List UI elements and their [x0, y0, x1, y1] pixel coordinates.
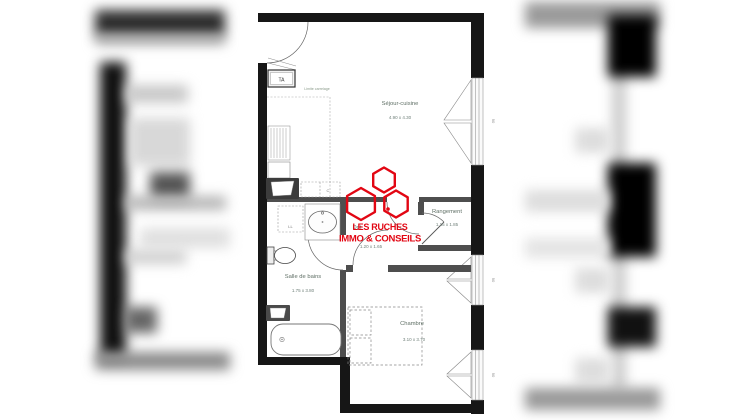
blur-right-wall-2	[608, 163, 656, 257]
wall-right-1	[471, 13, 484, 78]
blur-right-shutter-1	[575, 128, 610, 153]
blur-right-bottom-band	[525, 388, 660, 410]
blur-right-wall-3	[608, 307, 656, 347]
floor-plan: 90 90 90	[258, 8, 502, 414]
window-width-labels: 90 90 90	[491, 119, 496, 378]
window-sejour	[472, 78, 483, 165]
blur-right-shutter-3	[575, 358, 610, 383]
blur-left-detail-6	[126, 250, 186, 264]
pillow	[350, 338, 371, 363]
shower-fixture	[266, 305, 290, 321]
wall-right-2	[471, 165, 484, 255]
kitchen: TA Limite carrelage C	[266, 58, 340, 199]
electrical-panel-label: TA	[278, 78, 285, 84]
window-chambre	[472, 350, 483, 400]
kitchen-unit	[268, 162, 290, 178]
bed-outline	[348, 307, 422, 365]
bed	[348, 307, 422, 365]
entrance-door-arc	[267, 22, 308, 63]
kitchen-counter	[301, 182, 340, 197]
toilet	[267, 247, 296, 264]
blur-left-top-wall	[95, 10, 225, 36]
room-dims-chambre: 3.10 x 3.70	[403, 337, 426, 342]
blur-left-detail-5	[140, 228, 230, 248]
blur-left-bottom-band	[95, 352, 230, 370]
room-dims-bains: 1.75 x 3.80	[292, 288, 315, 293]
blur-left-detail-4	[126, 196, 226, 210]
window-width-label: 90	[491, 373, 496, 378]
blur-left-top-band	[95, 36, 225, 44]
agency-logo: LES RUCHES IMMO & CONSEILS	[339, 168, 421, 245]
blur-right-shutter-2	[575, 268, 610, 293]
room-name-rangement: Rangement	[432, 209, 462, 215]
blur-left-detail-7	[125, 307, 157, 333]
room-dims-rangement: 1.15 x 1.85	[436, 222, 459, 227]
window-rangement	[472, 255, 483, 305]
wall-top	[258, 13, 478, 22]
cooktop-label: C	[327, 188, 330, 193]
room-name-bains: Salle de bains	[285, 274, 322, 280]
tile-limit-label: Limite carrelage	[304, 87, 330, 91]
wall-bath-bottom	[258, 357, 350, 365]
window-width-label: 90	[491, 119, 496, 124]
wall-right-4	[471, 400, 484, 414]
kitchen-sink	[266, 178, 299, 199]
logo-line2: IMMO & CONSEILS	[339, 234, 421, 245]
wall-bottom	[340, 404, 484, 413]
blur-left-detail-1	[126, 85, 188, 103]
logo-hexagons-icon	[347, 168, 408, 221]
blur-right-detail-1	[525, 190, 610, 212]
fridge	[268, 126, 290, 160]
room-name-sejour: Séjour-cuisine	[382, 101, 419, 107]
blur-right-detail-2	[525, 238, 610, 258]
wall-right-3	[471, 305, 484, 350]
blur-left-detail-2	[130, 118, 190, 166]
pillow	[350, 310, 371, 335]
washing-machine-label: LL	[288, 224, 293, 229]
blur-left-wall	[100, 62, 126, 358]
room-name-chambre: Chambre	[400, 321, 424, 327]
wall-left	[258, 63, 267, 365]
floor-plan-canvas: 90 90 90	[0, 0, 750, 420]
room-dims-sejour: 4.90 x 4.30	[389, 115, 412, 120]
window-width-label: 90	[491, 278, 496, 283]
logo-line1: LES RUCHES	[352, 222, 407, 232]
window-swing-triangles	[444, 80, 471, 398]
blur-right-wall-1	[608, 15, 656, 77]
room-dims-dgt: 1.20 x 1.65	[360, 244, 383, 249]
